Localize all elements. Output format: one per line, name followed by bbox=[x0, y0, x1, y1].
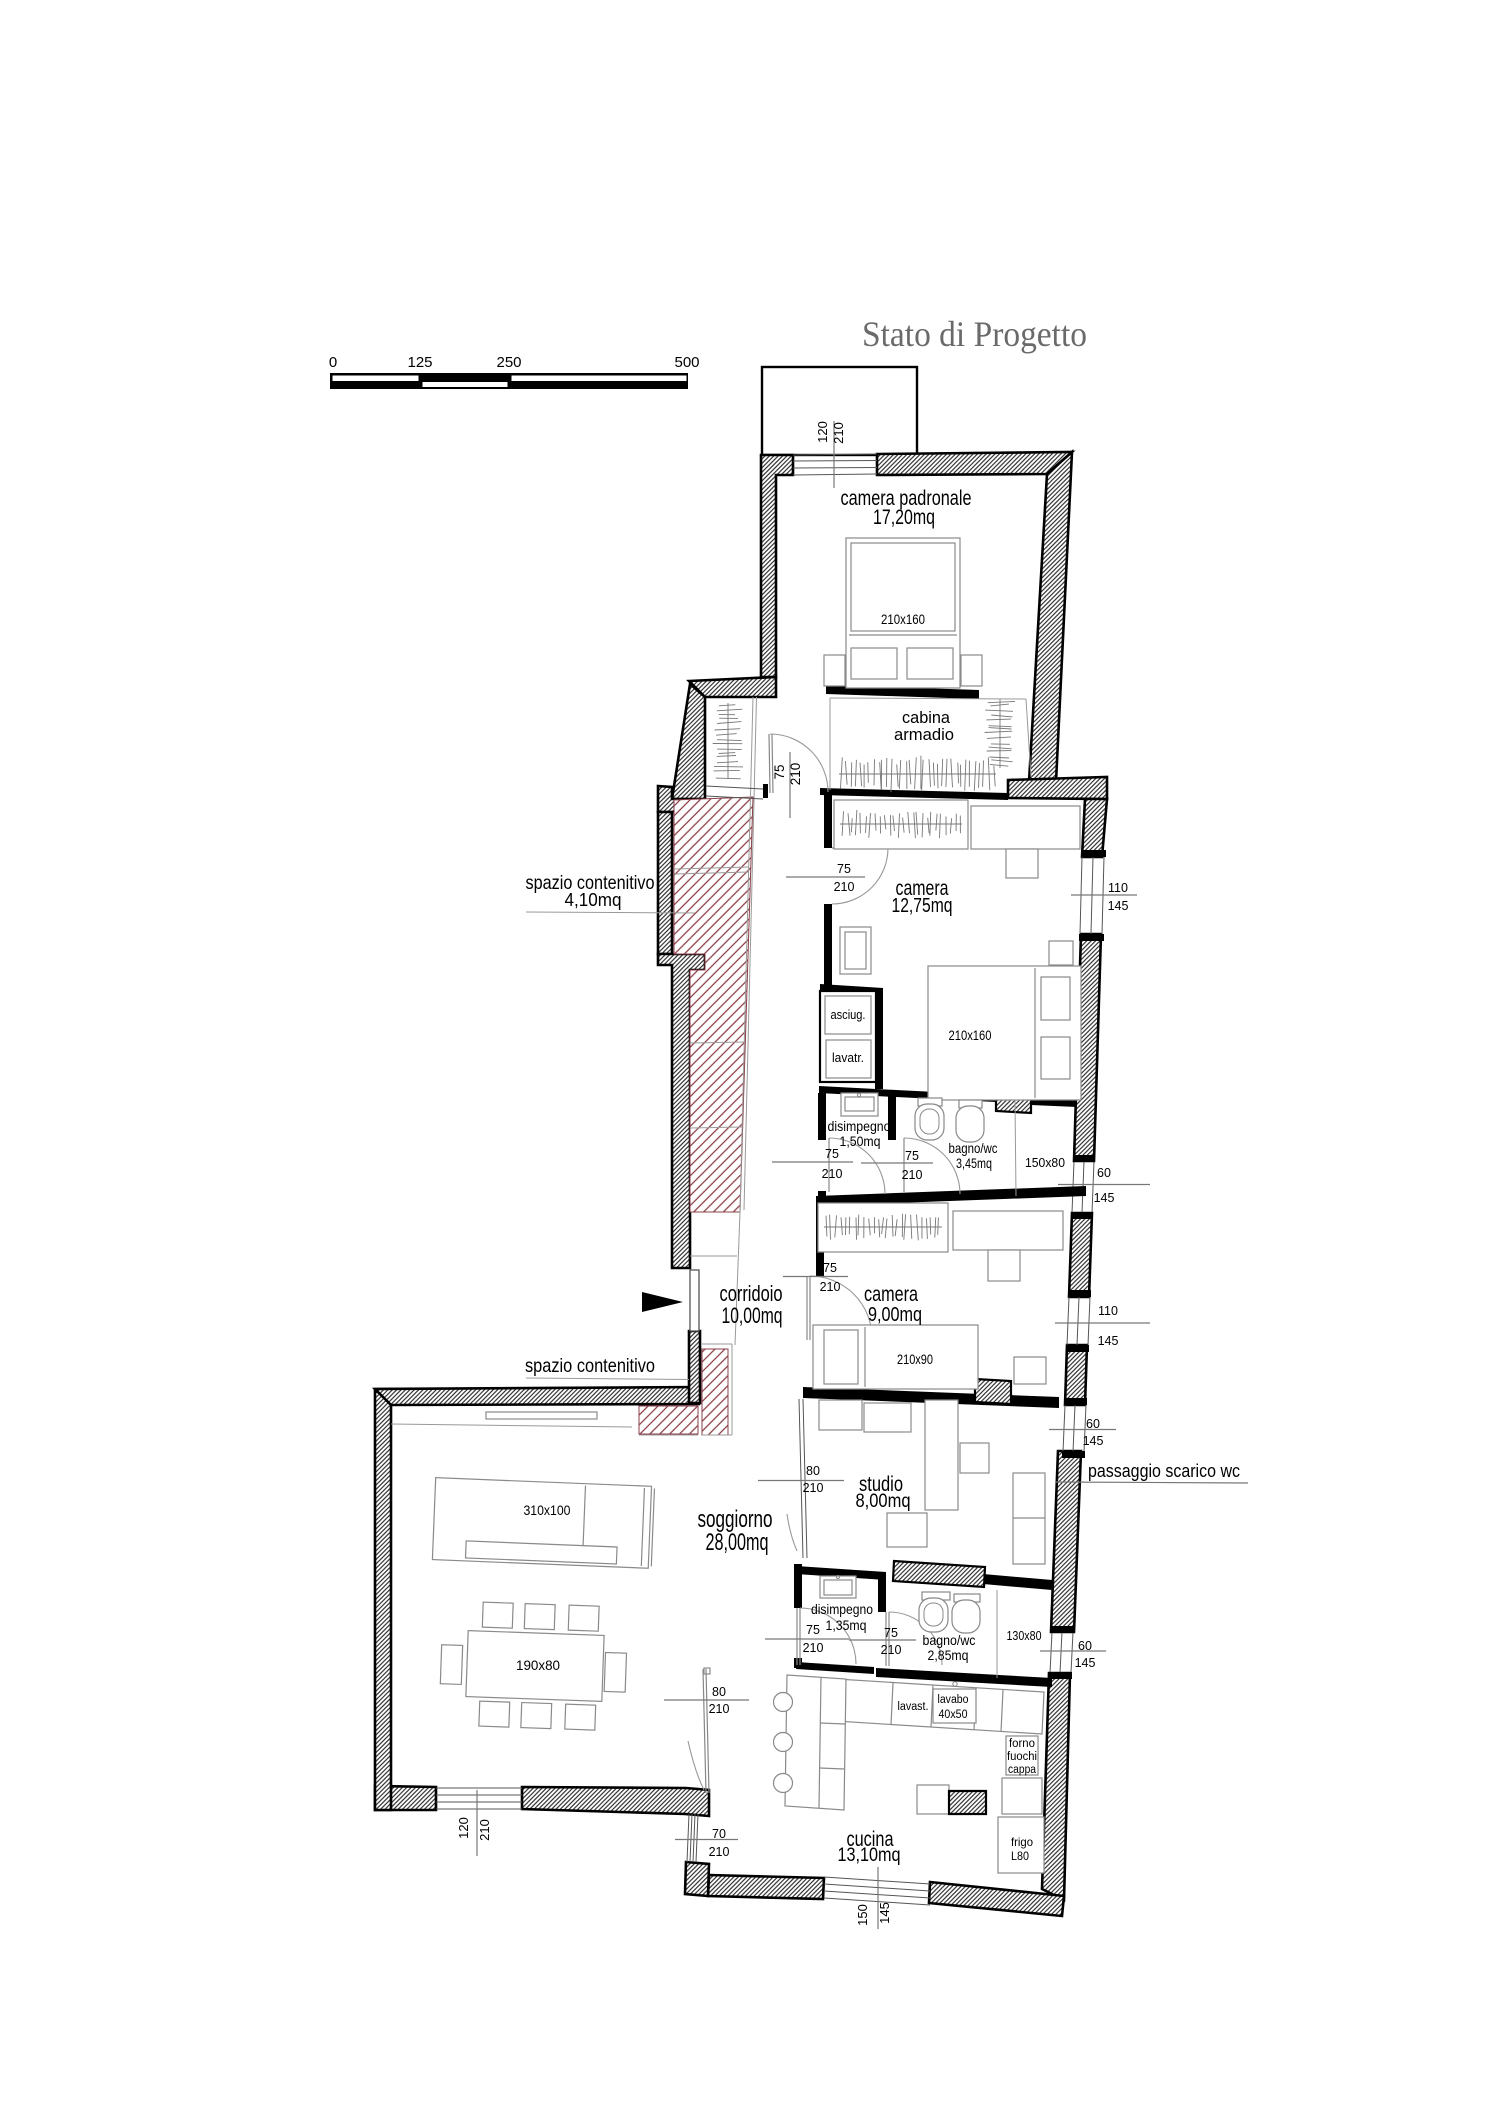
svg-text:150x80: 150x80 bbox=[1025, 1155, 1065, 1170]
svg-text:13,10mq: 13,10mq bbox=[838, 1845, 901, 1866]
svg-text:500: 500 bbox=[674, 354, 699, 371]
svg-text:145: 145 bbox=[1083, 1434, 1104, 1448]
svg-text:145: 145 bbox=[1098, 1334, 1119, 1348]
svg-text:28,00mq: 28,00mq bbox=[706, 1529, 769, 1556]
svg-text:80: 80 bbox=[806, 1464, 820, 1478]
svg-text:75: 75 bbox=[905, 1149, 919, 1163]
svg-text:lavabo: lavabo bbox=[938, 1694, 969, 1706]
svg-text:3,45mq: 3,45mq bbox=[956, 1155, 992, 1171]
svg-text:210: 210 bbox=[820, 1280, 841, 1294]
svg-text:10,00mq: 10,00mq bbox=[722, 1303, 783, 1328]
svg-text:210: 210 bbox=[822, 1167, 843, 1181]
svg-text:130x80: 130x80 bbox=[1007, 1628, 1042, 1643]
svg-text:310x100: 310x100 bbox=[524, 1502, 571, 1518]
svg-text:lavast.: lavast. bbox=[898, 1701, 929, 1713]
svg-text:120: 120 bbox=[456, 1817, 471, 1839]
svg-text:75: 75 bbox=[806, 1623, 820, 1637]
svg-text:bagno/wc: bagno/wc bbox=[923, 1632, 976, 1648]
svg-text:210: 210 bbox=[477, 1819, 492, 1841]
svg-text:210: 210 bbox=[834, 880, 855, 894]
svg-text:210: 210 bbox=[709, 1845, 730, 1859]
svg-text:camera: camera bbox=[864, 1283, 918, 1306]
svg-text:12,75mq: 12,75mq bbox=[892, 895, 953, 917]
svg-text:60: 60 bbox=[1097, 1166, 1111, 1180]
svg-text:75: 75 bbox=[884, 1626, 898, 1640]
svg-text:disimpegno: disimpegno bbox=[828, 1118, 891, 1134]
svg-text:210: 210 bbox=[788, 763, 803, 786]
svg-text:armadio: armadio bbox=[894, 725, 954, 744]
svg-text:210: 210 bbox=[709, 1702, 730, 1716]
svg-text:80: 80 bbox=[712, 1685, 726, 1699]
svg-text:120: 120 bbox=[815, 421, 830, 443]
svg-text:4,10mq: 4,10mq bbox=[565, 890, 622, 910]
svg-text:110: 110 bbox=[1108, 881, 1128, 895]
svg-text:9,00mq: 9,00mq bbox=[868, 1304, 922, 1326]
svg-text:210x160: 210x160 bbox=[949, 1027, 992, 1043]
svg-text:145: 145 bbox=[1075, 1656, 1096, 1670]
svg-text:150: 150 bbox=[855, 1904, 870, 1926]
svg-text:110: 110 bbox=[1098, 1304, 1118, 1318]
svg-text:210x160: 210x160 bbox=[881, 611, 925, 627]
svg-text:210x90: 210x90 bbox=[897, 1351, 933, 1367]
svg-text:L80: L80 bbox=[1011, 1849, 1029, 1863]
svg-text:190x80: 190x80 bbox=[516, 1657, 560, 1673]
svg-text:40x50: 40x50 bbox=[939, 1709, 968, 1721]
svg-text:75: 75 bbox=[825, 1147, 839, 1161]
svg-text:1,50mq: 1,50mq bbox=[840, 1133, 881, 1149]
svg-text:125: 125 bbox=[407, 354, 432, 371]
svg-text:asciug.: asciug. bbox=[831, 1008, 866, 1022]
svg-text:disimpegno: disimpegno bbox=[811, 1601, 873, 1617]
svg-text:bagno/wc: bagno/wc bbox=[949, 1140, 998, 1156]
svg-text:210: 210 bbox=[831, 422, 846, 444]
svg-text:250: 250 bbox=[496, 354, 521, 371]
svg-text:lavatr.: lavatr. bbox=[832, 1051, 864, 1065]
svg-text:Stato di Progetto: Stato di Progetto bbox=[862, 314, 1087, 354]
svg-text:cappa: cappa bbox=[1008, 1764, 1037, 1776]
svg-text:210: 210 bbox=[803, 1481, 824, 1495]
svg-text:1,35mq: 1,35mq bbox=[826, 1617, 867, 1633]
svg-text:forno: forno bbox=[1009, 1738, 1035, 1750]
svg-text:210: 210 bbox=[881, 1643, 902, 1657]
svg-text:frigo: frigo bbox=[1011, 1835, 1033, 1849]
svg-text:8,00mq: 8,00mq bbox=[856, 1491, 911, 1512]
svg-text:passaggio scarico wc: passaggio scarico wc bbox=[1088, 1461, 1240, 1481]
svg-text:spazio contenitivo: spazio contenitivo bbox=[525, 1355, 655, 1377]
svg-text:17,20mq: 17,20mq bbox=[873, 506, 935, 529]
svg-text:fuochi: fuochi bbox=[1007, 1751, 1037, 1763]
svg-text:75: 75 bbox=[772, 764, 787, 779]
svg-text:210: 210 bbox=[803, 1641, 824, 1655]
svg-text:210: 210 bbox=[902, 1168, 923, 1182]
svg-text:145: 145 bbox=[1108, 899, 1129, 913]
svg-text:2,85mq: 2,85mq bbox=[928, 1647, 969, 1663]
svg-text:75: 75 bbox=[837, 862, 851, 876]
svg-text:0: 0 bbox=[329, 354, 337, 371]
svg-text:75: 75 bbox=[823, 1261, 837, 1275]
svg-text:145: 145 bbox=[877, 1902, 892, 1924]
svg-text:145: 145 bbox=[1094, 1191, 1115, 1205]
